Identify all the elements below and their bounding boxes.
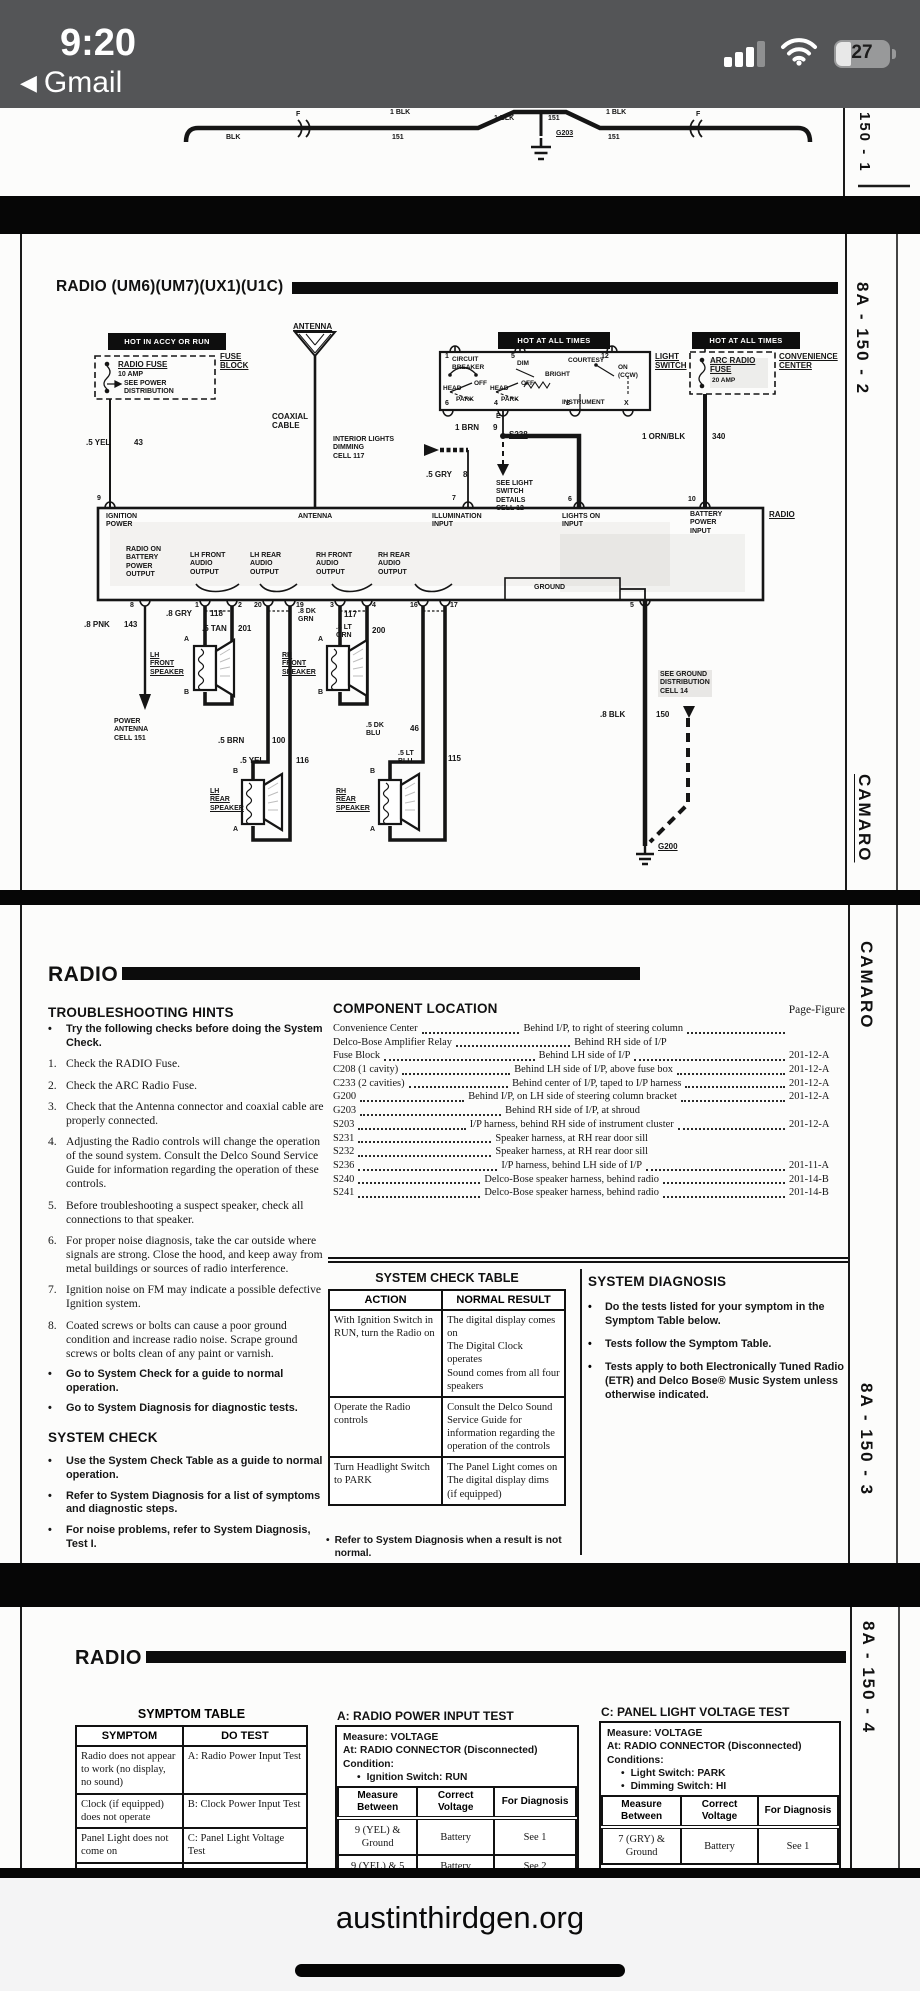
ref-label: INTERIOR LIGHTS DIMMING CELL 117 [333,436,394,461]
table-row: G200Behind I/P, on LH side of steering c… [333,1091,845,1104]
component-label: RH REAR SPEAKER [336,788,370,813]
rating-label: 10 AMP [118,371,143,379]
list-marker: • [588,1360,605,1402]
component-location: Delco-Bose speaker harness, behind radio [484,1187,659,1200]
scanned-page-150-2: RADIO (UM6)(UM7)(UX1)(U1C) [0,234,920,890]
ref-label: SEE POWER DISTRIBUTION [124,380,174,397]
terminal-label: 4 [494,400,498,408]
list-item: 8.Coated screws or bolts can cause a poo… [48,1319,326,1361]
list-marker: • [588,1300,605,1328]
scanned-page-150-3: RADIO TROUBLESHOOTING HINTS •Try the fol… [0,905,920,1563]
component-label: RADIO [769,510,795,519]
list-text: Try the following checks before doing th… [66,1023,326,1050]
list-item: •Go to System Check for a guide to norma… [48,1368,326,1395]
list-item: •Refer to System Diagnosis for a list of… [48,1490,326,1517]
wire-label: .5 LT BLU [398,750,414,767]
list-marker: • [48,1524,66,1551]
ref-label: SEE GROUND DISTRIBUTION CELL 14 [658,670,712,697]
terminal-label: X [624,400,629,408]
terminal-label: 4 [372,602,376,610]
list-text: Go to System Diagnosis for diagnostic te… [66,1402,298,1416]
switch-label: HEAD [443,385,461,393]
list-marker: • [357,1771,361,1784]
page-number-label: 8A - 150 - 4 [858,1621,878,1861]
condition-text: Ignition Switch: RUN [367,1771,468,1784]
condition-bullet: •Dimming Switch: HI [607,1780,833,1793]
banner-label: HOT IN ACCY OR RUN [124,337,209,346]
system-diagnosis-section: SYSTEM DIAGNOSIS •Do the tests listed fo… [588,1273,852,1402]
back-app-label: Gmail [44,66,122,100]
wire-label: 1 BLK [606,109,626,117]
pin-function-label: IGNITION POWER [106,513,137,530]
list-text: For noise problems, refer to System Diag… [66,1524,326,1551]
list-item: 4.Adjusting the Radio controls will chan… [48,1135,326,1192]
clock: 9:20 [60,22,136,65]
table-cell: Radio does not appear to work (no displa… [76,1746,183,1794]
page-figure: 201-12-A [789,1064,845,1077]
component-location-table: COMPONENT LOCATION Page-Figure Convenien… [333,1001,845,1201]
column-header: Page-Figure [789,1004,845,1016]
table-cell: Battery [417,1818,494,1855]
component-label: FUSE BLOCK [220,352,248,371]
component-label: ANTENNA [293,322,332,331]
circuit-label: 43 [134,438,143,447]
hot-in-accy-banner: HOT IN ACCY OR RUN [108,333,226,350]
list-text: Refer to System Diagnosis for a list of … [66,1490,326,1517]
page-number-label: 8A - 150 - 3 [856,1383,876,1555]
component-location: Behind I/P, on LH side of steering colum… [468,1091,677,1104]
list-text: Go to System Check for a guide to normal… [66,1368,326,1395]
banner-label: HOT AT ALL TIMES [517,336,590,345]
test-a-box: Measure: VOLTAGE At: RADIO CONNECTOR (Di… [335,1725,579,1868]
table-cell: C: Panel Light Voltage Test [183,1828,307,1862]
wire-label: COAXIAL CABLE [272,412,308,431]
wire-label: .5 TAN [202,624,227,633]
list-item: 5.Before troubleshooting a suspect speak… [48,1199,326,1227]
switch-label: BRIGHT [545,371,570,379]
table-cell: Panel Light does not come on [76,1828,183,1862]
column-header: Correct Voltage [417,1787,494,1818]
wire-label: .8 DK GRN [298,608,316,625]
model-label: CAMARO [856,941,876,1053]
terminal-label: 9 [97,495,101,503]
table-cell: Battery [681,1827,758,1864]
wire-label: .8 GRY [166,609,192,618]
table-cell: 9 (YEL) & 5 [338,1855,417,1868]
scanned-page-150-1: F BLK 1 BLK 151 1 BLK 151 G203 1 BLK 151… [0,108,920,196]
component-name: Delco-Bose Amplifier Relay [333,1037,452,1050]
circuit-label: 46 [410,724,419,733]
pin-function-label: LIGHTS ON INPUT [562,513,600,530]
page-figure: 201-12-A [789,1091,845,1104]
list-marker: • [621,1780,625,1793]
table-row: S241Delco-Bose speaker harness, behind r… [333,1187,845,1200]
table-row: S231Speaker harness, at RH rear door sil… [333,1133,845,1146]
list-marker: 1. [48,1057,66,1071]
list-item: 2.Check the ARC Radio Fuse. [48,1079,326,1093]
component-label: RADIO FUSE [118,360,167,369]
wire-label: .5 GRY [426,470,452,479]
column-header: ACTION [329,1290,442,1310]
list-item: •Go to System Diagnosis for diagnostic t… [48,1402,326,1416]
symptom-table: SYMPTOM DO TEST Radio does not appear to… [75,1725,308,1868]
list-marker: 8. [48,1319,66,1361]
circuit-label: 118 [210,609,223,618]
component-name: S241 [333,1187,354,1200]
list-marker: • [621,1767,625,1780]
component-name: S240 [333,1174,354,1187]
table-footnote: • Refer to System Diagnosis when a resul… [326,1535,578,1561]
page-figure: 201-12-A [789,1078,845,1091]
list-text: Do the tests listed for your symptom in … [605,1300,852,1328]
component-label: ARC RADIO FUSE [710,356,755,375]
circuit-label: 100 [272,736,285,745]
page-figure: 201-12-A [789,1050,845,1063]
table-title: SYSTEM CHECK TABLE [328,1271,566,1285]
model-label: CAMARO [854,774,874,878]
component-name: S231 [333,1133,354,1146]
page-figure: 201-12-A [789,1119,845,1132]
table-cell: The digital display comes on The Digital… [442,1310,565,1397]
circuit-label: 116 [296,756,309,765]
terminal-label: B [233,768,238,776]
list-item: 1.Check the RADIO Fuse. [48,1057,326,1071]
list-item: •Use the System Check Table as a guide t… [48,1455,326,1482]
section-heading: SYSTEM DIAGNOSIS [588,1274,726,1289]
list-marker: • [48,1490,66,1517]
component-label: CIRCUIT BREAKER [452,356,484,371]
pin-function-label: RH REAR AUDIO OUTPUT [378,552,410,577]
table-cell: See 1 [494,1818,576,1855]
component-label: LH FRONT SPEAKER [150,652,184,677]
wire-label: 1 ORN/BLK [642,432,685,441]
page-section-title: RADIO [48,963,118,987]
list-marker: 7. [48,1283,66,1311]
terminal-label: A [233,826,238,834]
circuit-label: 9 [493,423,497,432]
list-item: •Try the following checks before doing t… [48,1023,326,1050]
terminal-label: 5 [511,353,515,361]
page-figure: 201-14-B [789,1187,845,1200]
table-cell: Consult the Delco Sound Service Guide fo… [442,1397,565,1458]
terminal-label: 1 [195,602,199,610]
terminal-label: 1 [445,353,449,361]
terminal-label: B [184,689,189,697]
pin-function-label: RADIO ON BATTERY POWER OUTPUT [126,546,161,579]
component-location: Behind center of I/P, taped to I/P harne… [512,1078,681,1091]
column-header: Measure Between [602,1796,681,1827]
scanned-page-150-4: RADIO SYMPTOM TABLE SYMPTOM DO TEST Radi… [0,1607,920,1868]
pin-function-label: LH REAR AUDIO OUTPUT [250,552,281,577]
circuit-label: 150 [656,710,669,719]
battery-nub [892,49,896,59]
table-row: S232Speaker harness, at RH rear door sil… [333,1146,845,1159]
table-cell: See 2 [494,1855,576,1868]
table-row: S240Delco-Bose speaker harness, behind r… [333,1174,845,1187]
column-divider [580,1269,582,1555]
circuit-label: 143 [124,620,137,629]
iphone-screen: 9:20 ◀ Gmail 27 F [0,0,920,1991]
component-location: Behind RH side of I/P [574,1037,666,1050]
component-location: Behind I/P, to right of steering column [523,1023,683,1036]
wire-label: .5 YEL [240,756,264,765]
table-row: C208 (1 cavity)Behind LH side of I/P, ab… [333,1064,845,1077]
table-row: Delco-Bose Amplifier RelayBehind RH side… [333,1037,845,1050]
section-heading: COMPONENT LOCATION [333,1001,498,1016]
terminal-label: 6 [568,496,572,504]
at-line: At: RADIO CONNECTOR (Disconnected) [607,1740,833,1753]
test-a-table: Measure Between Correct Voltage For Diag… [337,1786,577,1868]
splice-label: S238 [509,430,528,439]
table-cell: The Panel Light comes on The digital dis… [442,1457,565,1504]
divider-rule [328,1257,848,1259]
component-label: LH REAR SPEAKER [210,788,244,813]
section-heading: TROUBLESHOOTING HINTS [48,1005,234,1020]
table-cell: Battery [417,1855,494,1868]
circuit-label: 340 [712,432,725,441]
table-row: C233 (2 cavities)Behind center of I/P, t… [333,1078,845,1091]
component-location: Delco-Bose speaker harness, behind radio [484,1174,659,1187]
circuit-label: 8 [463,470,467,479]
home-indicator[interactable] [295,1964,625,1977]
list-item: •Tests follow the Symptom Table. [588,1337,852,1351]
list-text: Adjusting the Radio controls will change… [66,1135,326,1192]
back-arrow-icon: ◀ [20,72,37,94]
list-item: •Do the tests listed for your symptom in… [588,1300,852,1328]
page-edge-line [896,905,898,1563]
pin-function-label: ANTENNA [298,513,332,521]
list-text: Check the ARC Radio Fuse. [66,1079,197,1093]
component-location: I/P harness, behind LH side of I/P [501,1160,642,1173]
component-name: G203 [333,1105,356,1118]
table-row: S236I/P harness, behind LH side of I/P20… [333,1160,845,1173]
condition-bullet: •Ignition Switch: RUN [343,1771,571,1784]
terminal-label: A [370,826,375,834]
page-frame-line [848,905,850,1563]
terminal-label: 16 [410,602,418,610]
list-marker: 4. [48,1135,66,1192]
component-location: Behind LH side of I/P, above fuse box [514,1064,673,1077]
component-name: S203 [333,1119,354,1132]
condition-line: Condition: [343,1758,571,1771]
circuit-label: 201 [238,624,251,633]
wire-label: 1 BRN [455,423,479,432]
wire-label: BLK [226,134,240,142]
switch-label: OFF [521,380,534,388]
battery-percent: 27 [834,42,890,64]
system-check-table: ACTION NORMAL RESULT With Ignition Switc… [328,1289,566,1506]
ref-label: POWER ANTENNA CELL 151 [114,718,148,743]
component-location: Speaker harness, at RH rear door sill [495,1146,648,1159]
component-location: Speaker harness, at RH rear door sill [495,1133,648,1146]
terminal-label: 2 [566,400,570,408]
connector-label: F [696,111,700,119]
component-label: CONVENIENCE CENTER [779,352,838,371]
terminal-label: 10 [688,496,696,504]
terminal-label: 5 [630,602,634,610]
terminal-label: 7 [452,495,456,503]
test-title: A: RADIO POWER INPUT TEST [337,1709,514,1723]
list-marker: 3. [48,1100,66,1128]
wire-label: .8 PNK [84,620,110,629]
wire-label: 1 BLK [390,109,410,117]
list-text: Use the System Check Table as a guide to… [66,1455,326,1482]
splice-label-g203: G203 [556,130,573,138]
pin-function-label: ILLUMINATION INPUT [432,513,482,530]
component-name: G200 [333,1091,356,1104]
test-conditions: Measure: VOLTAGE At: RADIO CONNECTOR (Di… [601,1723,839,1795]
circuit-label: 115 [448,754,461,763]
wire-label: .5 DK BLU [366,722,384,739]
page-separator [0,196,920,234]
circuit-label: 117 [344,610,357,619]
list-marker: 5. [48,1199,66,1227]
component-name: S232 [333,1146,354,1159]
condition-line: Conditions: [607,1754,833,1767]
battery-icon: 27 [834,40,890,68]
circuit-label: 151 [548,115,560,123]
switch-label: PARK [501,396,519,404]
ground-label-g200: G200 [658,842,678,851]
list-text: For proper noise diagnosis, take the car… [66,1234,326,1276]
list-marker: 6. [48,1234,66,1276]
switch-label: PARK [456,396,474,404]
list-marker: • [48,1023,66,1050]
column-header: DO TEST [183,1726,307,1746]
safari-bottom-bar: austinthirdgen.org [0,1878,920,1991]
component-location: Behind RH side of I/P, at shroud [505,1105,640,1118]
connector-label: F [296,111,300,119]
list-text: Coated screws or bolts can cause a poor … [66,1319,326,1361]
page-frame-line [850,1607,852,1868]
test-c-table: Measure Between Correct Voltage For Diag… [601,1795,839,1865]
hot-at-all-times-banner: HOT AT ALL TIMES [692,332,800,349]
circuit-label: 151 [392,134,404,142]
terminal-label: 12 [601,353,609,361]
title-bar [122,967,640,980]
table-row: Convenience CenterBehind I/P, to right o… [333,1023,845,1036]
divider-rule [328,1261,848,1263]
section-heading: SYSTEM CHECK [48,1430,158,1445]
table-cell: 7 (GRY) & Ground [602,1827,681,1864]
circuit-label: 200 [372,626,385,635]
column-header: SYMPTOM [76,1726,183,1746]
switch-label: OFF [474,380,487,388]
footnote-text: Refer to System Diagnosis when a result … [335,1535,578,1561]
column-header: Correct Voltage [681,1796,758,1827]
table-cell: See 1 [758,1827,838,1864]
table-cell: Turn Headlight Switch to PARK [329,1457,442,1504]
banner-label: HOT AT ALL TIMES [709,336,782,345]
list-marker: • [588,1337,605,1351]
page-edge-line [898,1607,900,1868]
test-title: C: PANEL LIGHT VOLTAGE TEST [601,1705,789,1719]
table-cell: Operate the Radio controls [329,1397,442,1458]
component-label: LIGHT SWITCH [655,352,687,371]
measure-line: Measure: VOLTAGE [343,1731,571,1744]
switch-label: ON (CCW) [618,364,638,379]
list-marker: • [326,1535,330,1561]
page-figure: 201-14-B [789,1174,845,1187]
page-number-label: 8A - 150 - 2 [852,282,872,472]
condition-text: Dimming Switch: HI [631,1780,727,1793]
rating-label: 20 AMP [712,377,735,385]
page-separator [0,1868,920,1878]
ref-label: SEE LIGHT SWITCH DETAILS CELL 12 [496,480,533,513]
terminal-label: 17 [450,602,458,610]
ground-symbol-g200 [636,846,654,864]
wire-label: .8 LT GRN [336,624,352,641]
list-item: 3.Check that the Antenna connector and c… [48,1100,326,1128]
wire-label: .5 YEL [86,438,110,447]
component-name: Convenience Center [333,1023,418,1036]
page-separator [0,890,920,905]
switch-label: COURTESY [568,357,604,365]
page-number-label: 150 - 1 [856,112,873,182]
component-name: C233 (2 cavities) [333,1078,405,1091]
page-separator [0,1563,920,1607]
terminal-label: 6 [445,400,449,408]
table-title: SYMPTOM TABLE [75,1707,308,1721]
condition-text: Light Switch: PARK [631,1767,726,1780]
cell-signal-icon [724,40,768,67]
component-name: C208 (1 cavity) [333,1064,398,1077]
list-item: 7.Ignition noise on FM may indicate a po… [48,1283,326,1311]
table-cell: A: Radio Power Input Test [183,1746,307,1794]
terminal-label: A [184,636,189,644]
pin-function-label: GROUND [534,584,565,592]
table-row: G203Behind RH side of I/P, at shroud [333,1105,845,1118]
table-cell: Clock (if equipped) does not operate [76,1794,183,1828]
page-section-title: RADIO [75,1647,142,1670]
terminal-label: 20 [254,602,262,610]
component-location: I/P harness, behind RH side of instrumen… [470,1119,674,1132]
wifi-icon [780,36,818,66]
hot-at-all-times-banner: HOT AT ALL TIMES [498,332,610,349]
component-location: Behind LH side of I/P [539,1050,631,1063]
wire-label: .8 BLK [600,710,625,719]
column-header: Measure Between [338,1787,417,1818]
pin-function-label: BATTERY POWER INPUT [690,511,722,536]
terminal-label: E [496,413,501,421]
list-text: Check the RADIO Fuse. [66,1057,180,1071]
table-cell: 9 (YEL) & Ground [338,1818,417,1855]
list-marker: • [48,1402,66,1416]
component-name: Fuse Block [333,1050,380,1063]
table-cell: With Ignition Switch in RUN, turn the Ra… [329,1310,442,1397]
list-text: Check that the Antenna connector and coa… [66,1100,326,1128]
url-bar[interactable]: austinthirdgen.org [0,1900,920,1936]
back-to-gmail-button[interactable]: ◀ Gmail [20,66,122,100]
condition-bullet: •Light Switch: PARK [607,1767,833,1780]
wire-label: 1 BLK [494,115,514,123]
page-frame-line [20,1607,22,1868]
page-figure: 201-11-A [789,1160,845,1173]
measure-line: Measure: VOLTAGE [607,1727,833,1740]
list-text: Tests follow the Symptom Table. [605,1337,771,1351]
column-header: For Diagnosis [758,1796,838,1827]
list-text: Before troubleshooting a suspect speaker… [66,1199,326,1227]
at-line: At: RADIO CONNECTOR (Disconnected) [343,1744,571,1757]
pin-function-label: RH FRONT AUDIO OUTPUT [316,552,352,577]
test-conditions: Measure: VOLTAGE At: RADIO CONNECTOR (Di… [337,1727,577,1786]
switch-label: DIM [517,360,529,368]
list-marker: • [48,1368,66,1395]
test-c-box: Measure: VOLTAGE At: RADIO CONNECTOR (Di… [599,1721,841,1868]
list-item: 6.For proper noise diagnosis, take the c… [48,1234,326,1276]
table-row: Fuse BlockBehind LH side of I/P201-12-A [333,1050,845,1063]
component-name: S236 [333,1160,354,1173]
